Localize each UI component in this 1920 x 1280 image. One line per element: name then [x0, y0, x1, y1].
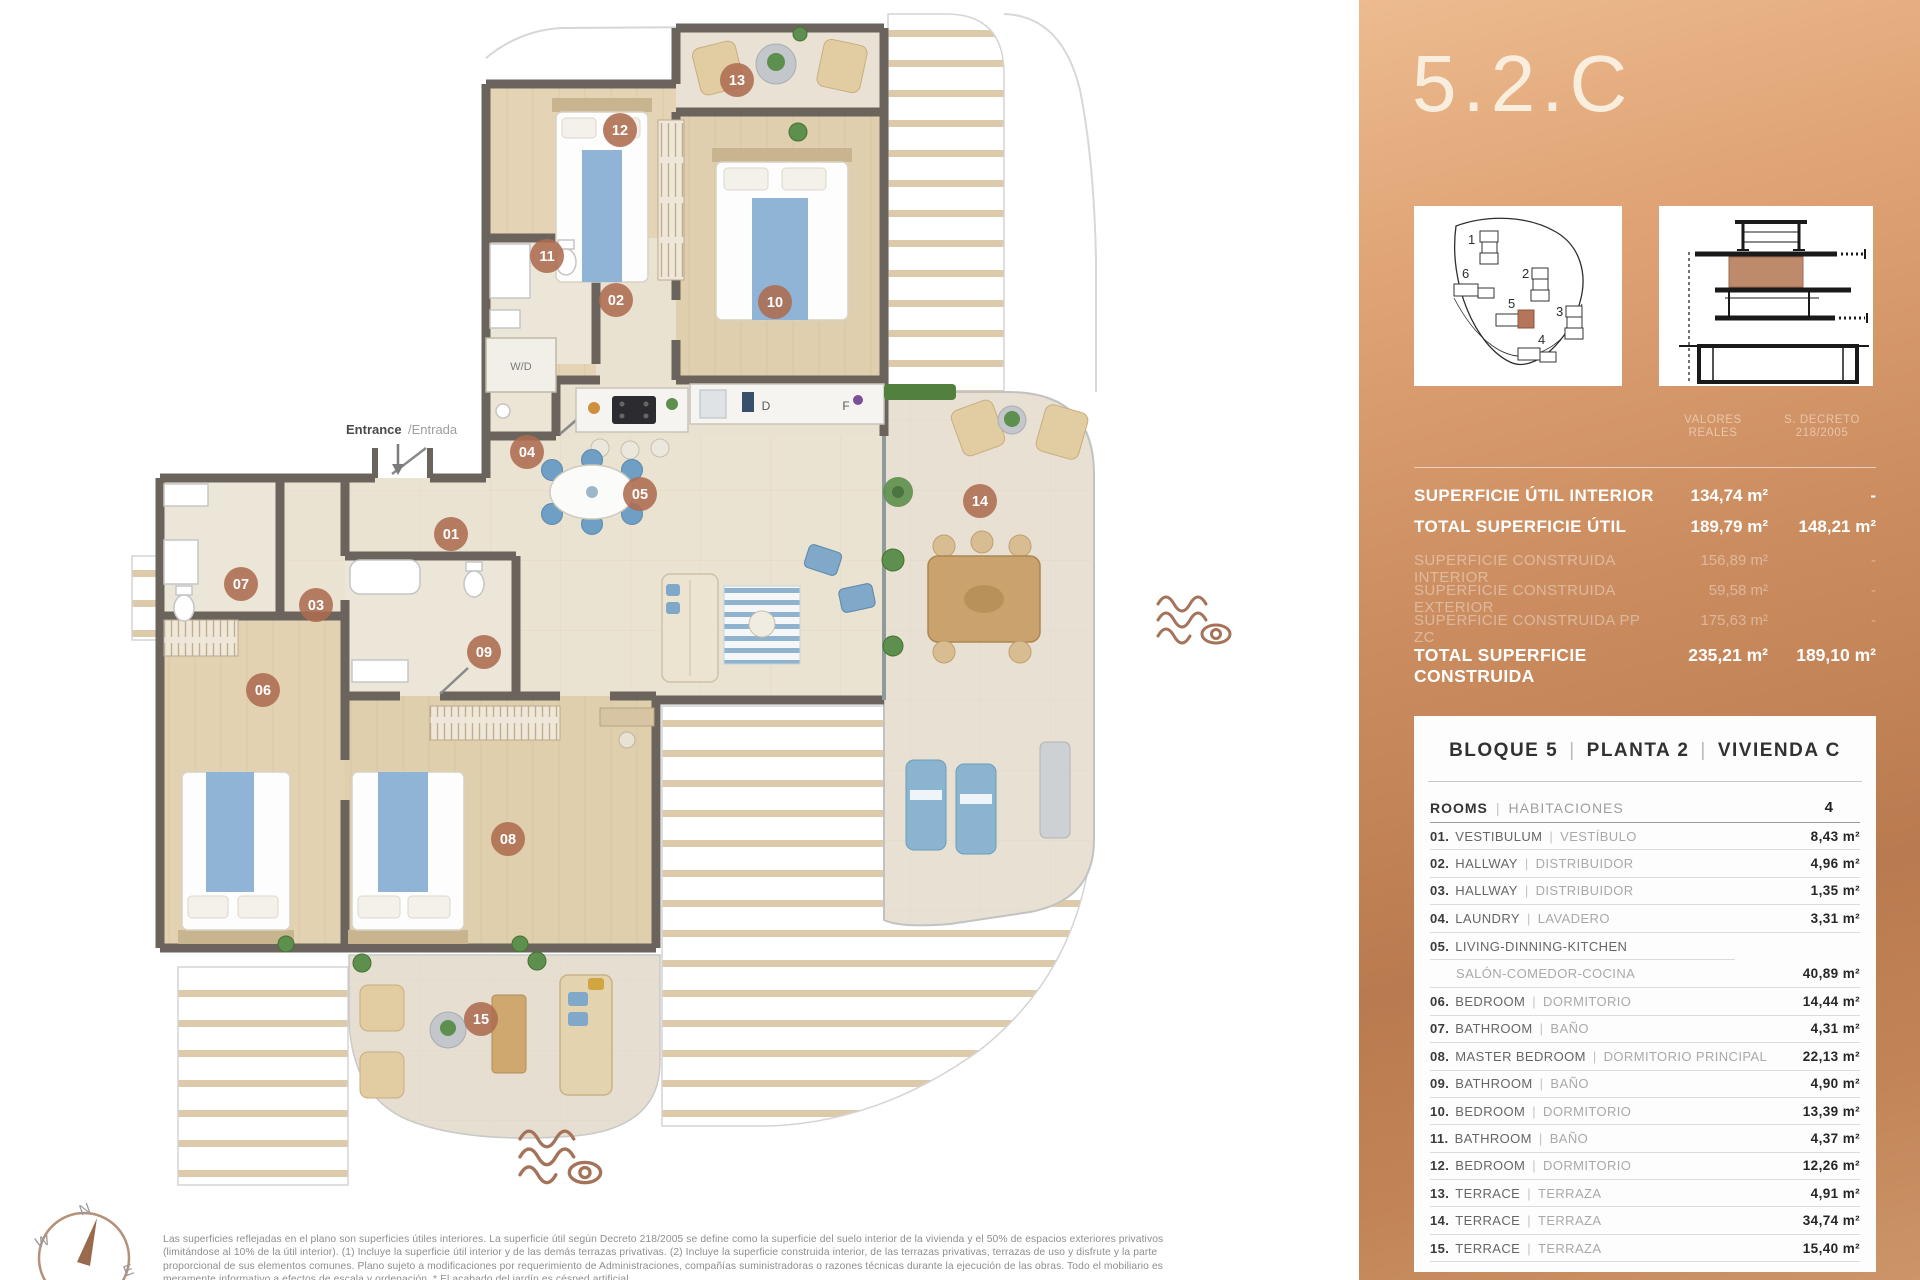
svg-text:1: 1 — [1468, 232, 1475, 247]
rooms-table-header: ROOMS|HABITACIONES4 — [1430, 793, 1860, 823]
room-row: 09.BATHROOM|BAÑO4,90 m² — [1430, 1071, 1860, 1098]
room-row: 13.TERRACE|TERRAZA4,91 m² — [1430, 1180, 1860, 1207]
room-badge-13: 13 — [720, 63, 754, 97]
surface-row: SUPERFICIE ÚTIL INTERIOR134,74 m²- — [1414, 486, 1876, 506]
svg-text:14: 14 — [972, 494, 988, 510]
room-row-living: 05.LIVING-DINNING-KITCHEN SALÓN-COMEDOR-… — [1430, 933, 1860, 989]
room-row: 02.HALLWAY|DISTRIBUIDOR4,96 m² — [1430, 850, 1860, 877]
highlighted-block5 — [1518, 310, 1534, 328]
kitchen-counter — [690, 384, 884, 424]
sea-view-icon — [1158, 597, 1230, 643]
svg-text:W: W — [33, 1231, 53, 1252]
bed-room06 — [178, 772, 294, 944]
unit-title: 5.2.C — [1412, 38, 1633, 130]
room-row: 01.VESTIBULUM|VESTÍBULO8,43 m² — [1430, 823, 1860, 850]
svg-text:E: E — [121, 1261, 136, 1280]
surface-row: TOTAL SUPERFICIE ÚTIL189,79 m²148,21 m² — [1414, 517, 1876, 537]
svg-text:05: 05 — [632, 487, 648, 503]
room-badge-04: 04 — [510, 435, 544, 469]
site-plan-diagram: 1 2 3 4 5 6 — [1414, 206, 1622, 386]
entrance-label-en: Entrance — [346, 422, 402, 437]
room-row: 08.MASTER BEDROOM|DORMITORIO PRINCIPAL22… — [1430, 1043, 1860, 1070]
room-row: 14.TERRACE|TERRAZA34,74 m² — [1430, 1207, 1860, 1234]
room-row: 07.BATHROOM|BAÑO4,31 m² — [1430, 1016, 1860, 1043]
room-row: 03.HALLWAY|DISTRIBUIDOR1,35 m² — [1430, 878, 1860, 905]
plant — [512, 936, 528, 952]
room-badge-02: 02 — [599, 283, 633, 317]
svg-text:5: 5 — [1508, 296, 1515, 311]
svg-text:12: 12 — [612, 123, 628, 139]
surface-row: SUPERFICIE CONSTRUIDA INTERIOR156,89 m²- — [1414, 552, 1876, 586]
fridge-label: F — [842, 399, 849, 413]
svg-text:4: 4 — [1538, 332, 1545, 347]
wardrobe — [430, 706, 560, 740]
surface-row: SUPERFICIE CONSTRUIDA PP ZC175,63 m²- — [1414, 612, 1876, 646]
plant — [278, 936, 294, 952]
rooms-count: 4 — [1825, 799, 1860, 816]
svg-text:2: 2 — [1522, 266, 1529, 281]
room-badge-08: 08 — [491, 822, 525, 856]
brochure-page: Entrance /Entrada W/D D F 01 02 03 04 05… — [0, 0, 1920, 1280]
room-badge-14: 14 — [963, 484, 997, 518]
room-badge-10: 10 — [758, 285, 792, 319]
svg-text:11: 11 — [539, 249, 554, 265]
entrance-label-es: /Entrada — [408, 422, 458, 437]
floor-plan: Entrance /Entrada W/D D F 01 02 03 04 05… — [0, 0, 1360, 1280]
room-badge-07: 07 — [224, 567, 258, 601]
surface-table-headers: VALORESREALES S. DECRETO218/2005 — [1414, 414, 1876, 440]
svg-text:04: 04 — [519, 445, 535, 461]
disclaimer-text: Las superficies reflejadas en el plano s… — [163, 1233, 1293, 1280]
room-row: 04.LAUNDRY|LAVADERO3,31 m² — [1430, 905, 1860, 932]
room-row: 11.BATHROOM|BAÑO4,37 m² — [1430, 1125, 1860, 1152]
room-badge-01: 01 — [434, 517, 468, 551]
room-row: 15.TERRACE|TERRAZA15,40 m² — [1430, 1235, 1860, 1262]
svg-text:02: 02 — [608, 293, 624, 309]
wardrobe — [164, 620, 238, 656]
svg-text:10: 10 — [767, 295, 783, 311]
svg-text:01: 01 — [443, 527, 459, 543]
surface-row: SUPERFICIE CONSTRUIDA EXTERIOR59,58 m²- — [1414, 582, 1876, 616]
room-badge-12: 12 — [603, 113, 637, 147]
room-badge-09: 09 — [467, 635, 501, 669]
sofa — [662, 574, 718, 682]
surface-row-total: TOTAL SUPERFICIE CONSTRUIDA235,21 m²189,… — [1414, 645, 1876, 687]
svg-text:07: 07 — [233, 577, 249, 593]
highlighted-floor-unit — [1729, 257, 1803, 287]
sea-view-icon — [520, 1131, 601, 1183]
svg-text:6: 6 — [1462, 266, 1469, 281]
rooms-card: BLOQUE 5|PLANTA 2|VIVIENDA C ROOMS|HABIT… — [1414, 716, 1876, 1272]
surface-table-divider — [1414, 467, 1876, 468]
wd-label: W/D — [510, 361, 531, 373]
svg-text:13: 13 — [729, 73, 745, 89]
room-badge-15: 15 — [464, 1002, 498, 1036]
svg-text:3: 3 — [1556, 304, 1563, 319]
svg-text:N: N — [77, 1200, 93, 1220]
room-badge-06: 06 — [246, 673, 280, 707]
card-divider — [1428, 781, 1862, 782]
info-panel: 5.2.C 1 2 3 4 5 6 — [1359, 0, 1920, 1280]
room-badge-03: 03 — [299, 588, 333, 622]
room-row: 10.BEDROOM|DORMITORIO13,39 m² — [1430, 1098, 1860, 1125]
building-section-diagram — [1659, 206, 1873, 386]
room-row: 06.BEDROOM|DORMITORIO14,44 m² — [1430, 988, 1860, 1015]
compass-icon: N W E S — [33, 1200, 136, 1280]
room-badge-11: 11 — [530, 239, 564, 273]
rooms-table: 01.VESTIBULUM|VESTÍBULO8,43 m² 02.HALLWA… — [1430, 823, 1860, 1262]
svg-text:15: 15 — [473, 1012, 489, 1028]
wardrobe — [658, 120, 684, 280]
svg-text:03: 03 — [308, 598, 324, 614]
room-row: 12.BEDROOM|DORMITORIO12,26 m² — [1430, 1153, 1860, 1180]
bed-room08 — [348, 772, 468, 944]
coffee-table — [749, 611, 775, 637]
room-badge-05: 05 — [623, 477, 657, 511]
card-title: BLOQUE 5|PLANTA 2|VIVIENDA C — [1414, 716, 1876, 762]
svg-text:06: 06 — [255, 683, 271, 699]
svg-text:09: 09 — [476, 645, 492, 661]
svg-text:08: 08 — [500, 832, 516, 848]
plant — [789, 123, 807, 141]
dishwasher-label: D — [762, 399, 771, 413]
